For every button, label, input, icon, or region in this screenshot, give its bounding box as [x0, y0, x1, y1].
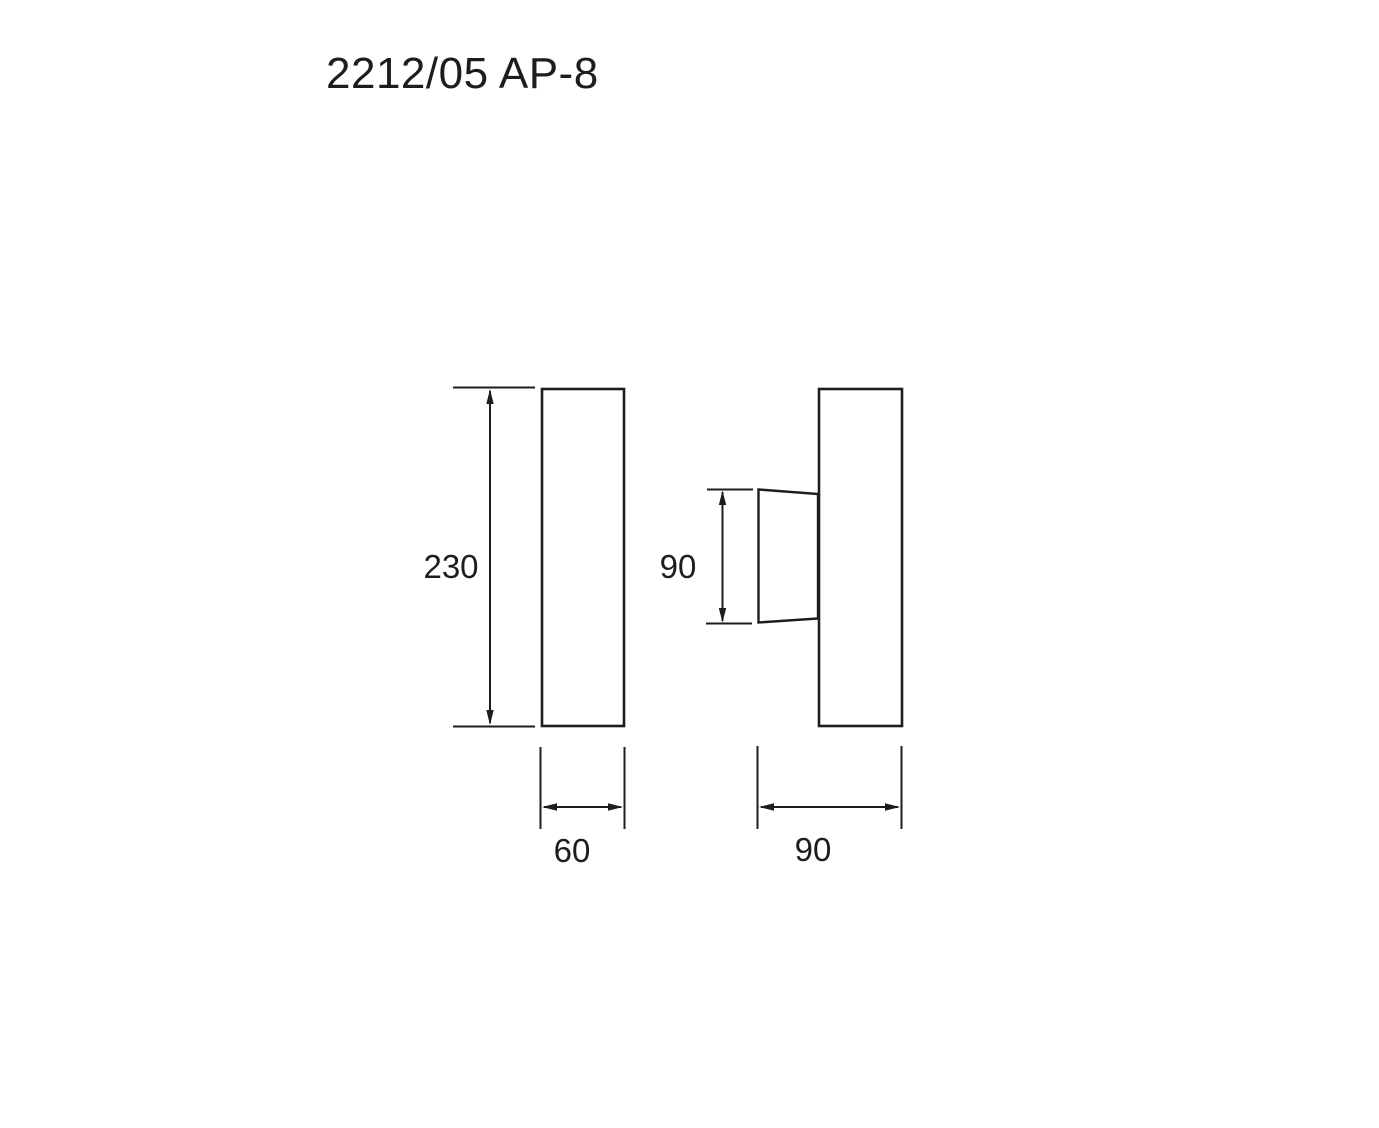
arrow-left-icon: [759, 803, 774, 810]
side-view-body-outline: [819, 389, 902, 726]
front-view-body-outline: [542, 389, 624, 726]
side-width-dimension: 90: [758, 746, 902, 868]
arrow-down-icon: [719, 608, 726, 623]
arrow-right-icon: [885, 803, 900, 810]
arrow-up-icon: [719, 491, 726, 506]
bracket-height-value: 90: [660, 548, 697, 585]
arrow-left-icon: [542, 803, 557, 810]
technical-drawing: 230 60: [0, 0, 1379, 1128]
front-height-value: 230: [423, 548, 478, 585]
side-width-value: 90: [795, 831, 832, 868]
arrow-down-icon: [486, 710, 493, 725]
front-view: 230 60: [423, 388, 624, 870]
arrow-up-icon: [486, 389, 493, 404]
arrow-right-icon: [608, 803, 623, 810]
bracket-height-dimension: 90: [660, 490, 753, 624]
front-height-dimension: 230: [423, 388, 535, 727]
side-view: 90 90: [660, 389, 902, 868]
spec-sheet-page: 2212/05 AP-8 230 60: [0, 0, 1379, 1128]
side-view-bracket-outline: [759, 490, 819, 623]
front-width-value: 60: [554, 832, 591, 869]
front-width-dimension: 60: [541, 747, 625, 869]
